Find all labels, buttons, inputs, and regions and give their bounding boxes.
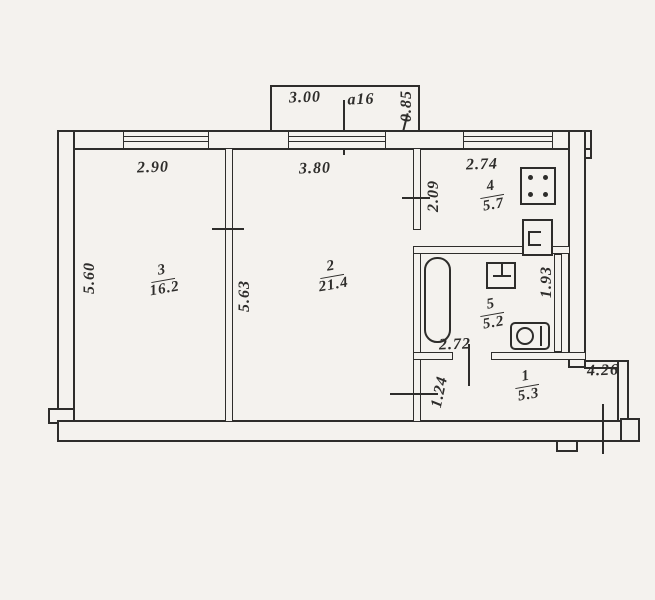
entry-door-tick — [602, 404, 604, 454]
dim-hallway-depth: 1.24 — [428, 370, 452, 414]
dim-kitchen-depth: 2.09 — [426, 175, 442, 217]
dim-bathroom-width: 2.72 — [425, 336, 486, 354]
porch-step — [556, 440, 578, 452]
window-room2-icon — [288, 132, 386, 148]
dim-room3-width: 2.90 — [118, 159, 189, 177]
dim-bathroom-right-depth: 1.93 — [539, 261, 555, 303]
room-2-area: 21.4 — [317, 272, 350, 295]
room-2-label: 2 21.4 — [299, 253, 364, 298]
bathtub-icon — [424, 257, 451, 343]
kitchen-sink-icon — [522, 219, 553, 256]
window-room3-icon — [123, 132, 209, 148]
balcony-depth-dim: 0.85 — [399, 85, 415, 127]
washbasin-icon — [486, 262, 516, 289]
exterior-wall-left — [57, 130, 75, 422]
room-3-label: 3 16.2 — [130, 257, 195, 302]
window-kitchen-icon — [463, 132, 553, 148]
hallway-area: 5.3 — [516, 383, 541, 405]
wall-bathroom-shaft — [554, 254, 562, 352]
wall-room2-hallway — [413, 354, 421, 422]
exterior-wall-bottom — [57, 420, 640, 442]
dim-room2-width: 3.80 — [280, 160, 351, 178]
hallway-label: 1 5.3 — [496, 363, 557, 407]
wall-room3-room2 — [225, 148, 233, 422]
exterior-wall-right — [568, 130, 586, 368]
kitchen-label: 4 5.7 — [463, 174, 520, 217]
bathroom-area: 5.2 — [481, 311, 506, 333]
stove-icon — [520, 167, 556, 205]
wall-bathroom-hallway-right — [491, 352, 586, 360]
wall-room2-bathroom — [413, 252, 421, 354]
tick-room3-room2 — [212, 228, 244, 230]
dim-hallway-width: 4.26 — [573, 362, 634, 380]
wall-room2-kitchen — [413, 148, 421, 230]
dim-room2-depth: 5.63 — [237, 275, 253, 317]
balcony-code-label: a16 — [340, 91, 383, 108]
floor-plan: 3.00 a16 0.85 — [0, 0, 655, 600]
dim-left-wall-depth: 5.60 — [82, 257, 98, 299]
room-3-area: 16.2 — [148, 276, 181, 299]
dim-kitchen-width: 2.74 — [450, 156, 515, 174]
kitchen-area: 5.7 — [481, 193, 506, 215]
balcony-width-dim: 3.00 — [276, 89, 335, 107]
hallway-corner-block — [620, 418, 640, 442]
